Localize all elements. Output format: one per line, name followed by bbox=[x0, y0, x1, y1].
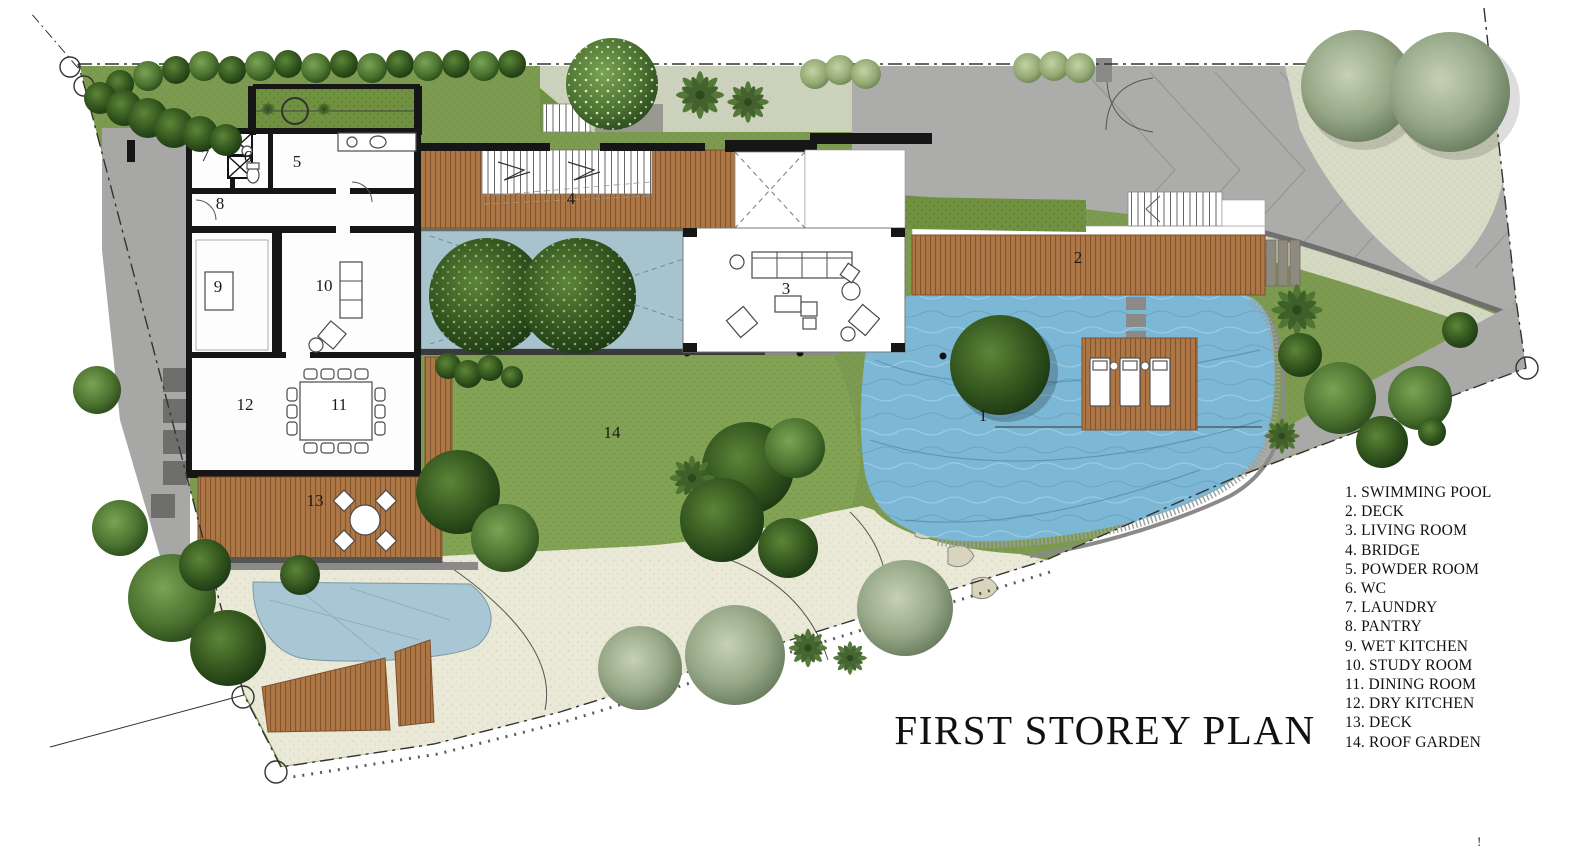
bridge-stair bbox=[482, 150, 652, 194]
plan-label-2: 2 bbox=[1074, 248, 1083, 267]
plan-label-7: 7 bbox=[201, 146, 210, 165]
legend-item-6: 6. WC bbox=[1345, 579, 1565, 598]
legend-item-3: 3. LIVING ROOM bbox=[1345, 521, 1565, 540]
legend-item-5: 5. POWDER ROOM bbox=[1345, 560, 1565, 579]
swimming-pool bbox=[861, 295, 1284, 556]
plan-label-8: 8 bbox=[216, 194, 225, 213]
legend-item-2: 2. DECK bbox=[1345, 502, 1565, 521]
legend-item-4: 4. BRIDGE bbox=[1345, 541, 1565, 560]
legend-item-10: 10. STUDY ROOM bbox=[1345, 656, 1565, 675]
plan-label-13: 13 bbox=[307, 491, 324, 510]
plan-label-5: 5 bbox=[293, 152, 302, 171]
plan-label-12: 12 bbox=[237, 395, 254, 414]
lounger-island bbox=[1082, 338, 1197, 430]
plan-label-10: 10 bbox=[316, 276, 333, 295]
site-plan-canvas: 1234567891011121314 1. SWIMMING POOL2. D… bbox=[0, 0, 1582, 860]
pool-light bbox=[940, 353, 947, 360]
plan-label-9: 9 bbox=[214, 277, 223, 296]
plan-title: FIRST STOREY PLAN bbox=[830, 706, 1380, 754]
living-room bbox=[683, 228, 905, 352]
deck-2 bbox=[912, 226, 1300, 295]
stray-mark: ! bbox=[1477, 834, 1481, 850]
plan-label-11: 11 bbox=[331, 395, 347, 414]
pool-stepping-stones bbox=[1126, 297, 1146, 344]
plan-label-1: 1 bbox=[979, 406, 988, 425]
plan-label-3: 3 bbox=[782, 279, 791, 298]
legend-item-8: 8. PANTRY bbox=[1345, 617, 1565, 636]
courtyard bbox=[248, 84, 422, 135]
legend-item-7: 7. LAUNDRY bbox=[1345, 598, 1565, 617]
legend-item-9: 9. WET KITCHEN bbox=[1345, 637, 1565, 656]
legend-item-11: 11. DINING ROOM bbox=[1345, 675, 1565, 694]
lower-deck-b bbox=[395, 640, 434, 726]
garden-stair bbox=[1128, 192, 1222, 226]
plan-label-14: 14 bbox=[604, 423, 622, 442]
deck-end-steps bbox=[1266, 240, 1300, 286]
gate-post bbox=[1096, 58, 1112, 82]
plan-label-6: 6 bbox=[244, 147, 253, 166]
plan-label-4: 4 bbox=[567, 189, 576, 208]
legend-item-1: 1. SWIMMING POOL bbox=[1345, 483, 1565, 502]
